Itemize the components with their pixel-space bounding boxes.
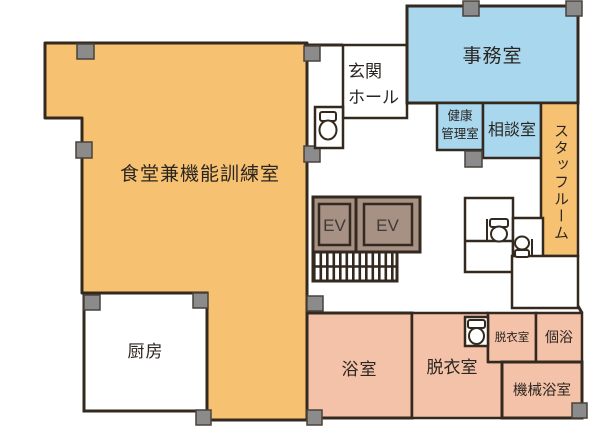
- room-staff-area: [541, 103, 578, 256]
- room-private-bath-area: [536, 313, 582, 362]
- elevator-2: [364, 204, 412, 245]
- pillar: [84, 295, 100, 310]
- pillar: [465, 151, 482, 167]
- room-kitchen-area: [84, 293, 207, 411]
- room-office-area: [407, 6, 578, 103]
- pillar: [304, 46, 320, 61]
- pillar: [307, 296, 323, 311]
- room-utility: [512, 256, 578, 308]
- pillar: [77, 44, 94, 59]
- pillar: [566, 1, 582, 16]
- pillar: [463, 1, 479, 16]
- pillar: [196, 410, 211, 425]
- floor-plan: 食堂兼機能訓練室 厨房 玄関 ホール 事務室 健康 管理室 相談室 スタッフルー…: [0, 0, 600, 427]
- floor-plan-drawing: [0, 0, 600, 427]
- room-dressing-small-area: [488, 313, 536, 362]
- room-machine-bath-area: [502, 362, 582, 418]
- room-health-management-area: [437, 103, 483, 150]
- toilet-icon: [315, 107, 343, 148]
- stairs: [313, 252, 397, 281]
- pillar: [307, 410, 322, 425]
- pillar: [572, 403, 587, 418]
- pillar: [76, 142, 92, 158]
- room-consultation-area: [483, 103, 541, 158]
- room-bath-area: [307, 313, 412, 418]
- elevator-1: [319, 204, 350, 245]
- elevator-block: [313, 197, 420, 252]
- toilet-icon: [465, 317, 488, 346]
- pillar: [193, 293, 208, 308]
- room-entrance-hall-area: [343, 45, 407, 118]
